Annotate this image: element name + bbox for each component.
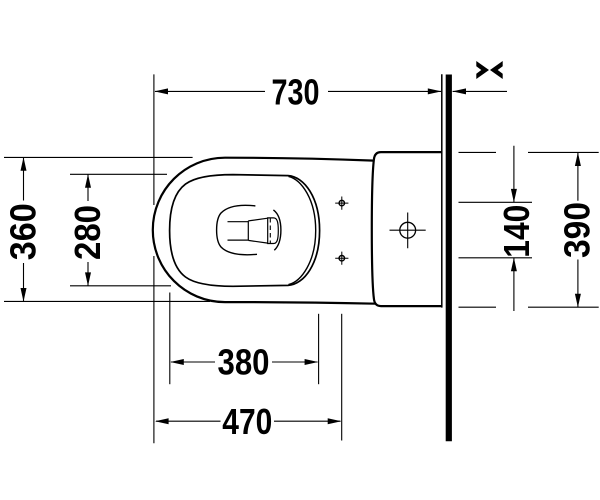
svg-text:380: 380 xyxy=(218,342,270,383)
svg-text:140: 140 xyxy=(496,205,537,258)
svg-text:360: 360 xyxy=(3,203,44,260)
svg-text:730: 730 xyxy=(272,71,320,112)
svg-text:470: 470 xyxy=(222,401,272,442)
svg-text:280: 280 xyxy=(67,205,108,260)
svg-text:390: 390 xyxy=(557,202,598,258)
